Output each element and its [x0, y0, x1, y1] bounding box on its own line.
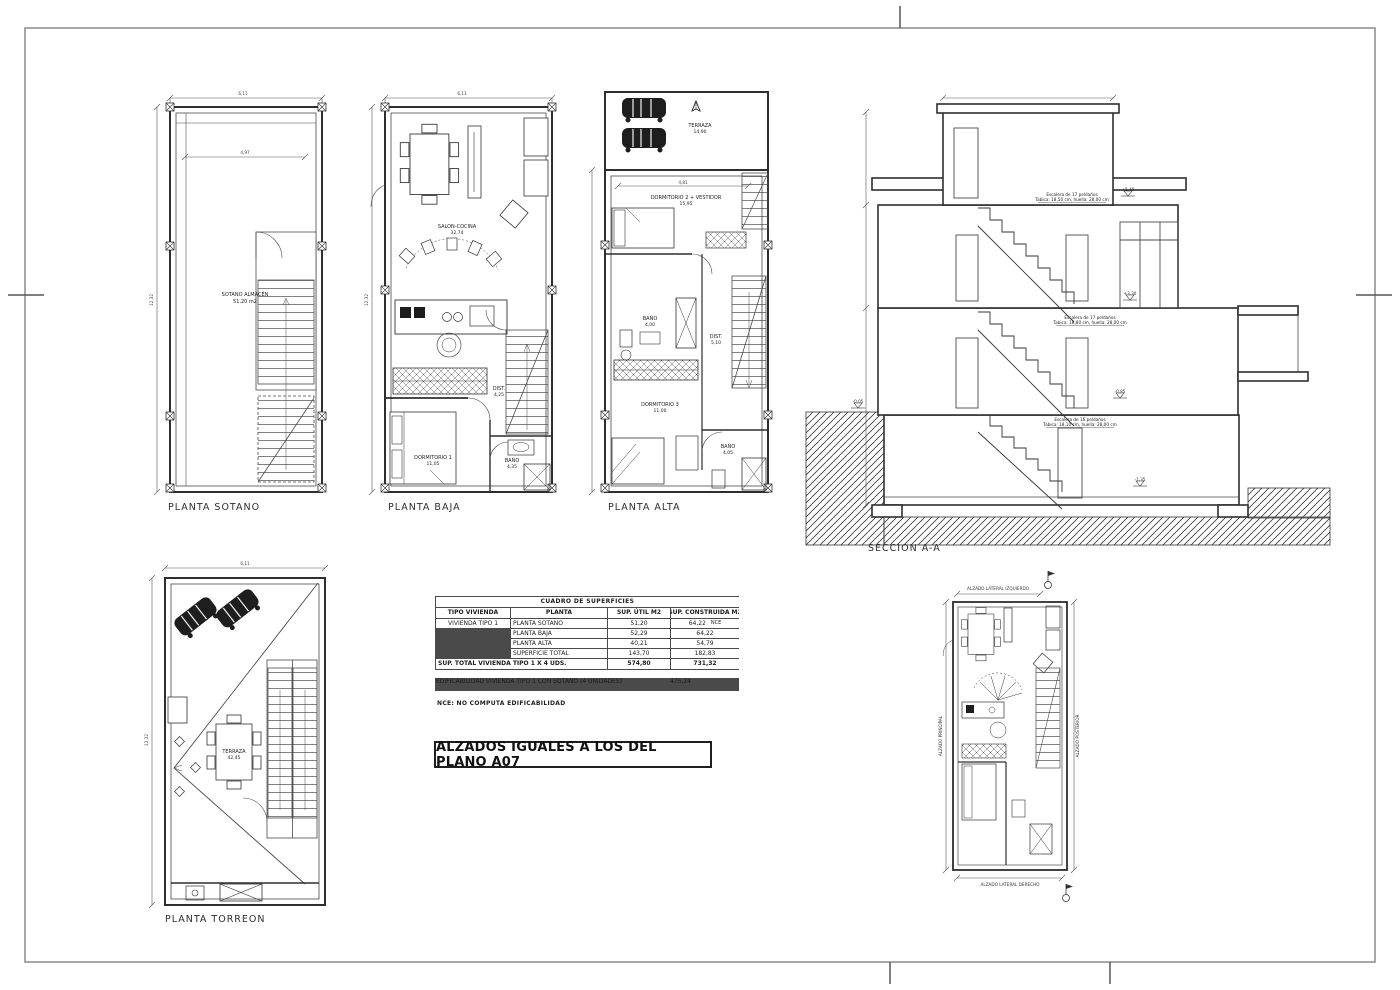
- cell-cons-total-planta: 182,83: [671, 649, 739, 658]
- alta-dorm2-area: 15,95: [680, 201, 693, 207]
- plan-torreon: 6,11 12,32 TERRAZA 42,45: [144, 561, 328, 925]
- cell-edificabilidad-label: EDIFICABILIDAD VIVIENDA TIPO 1 CON SOTAN…: [436, 679, 669, 690]
- alta-terraza-area: 14,90: [694, 129, 707, 135]
- alta-dorm2-label: DORMITORIO 2 + VESTIDOR: [651, 195, 722, 201]
- alta-dorm3-area: 11,00: [654, 408, 667, 414]
- dim-sotano-width: 6,11: [238, 91, 248, 96]
- dim-baja-height: 12,32: [364, 294, 369, 306]
- baja-dorm1-label: DORMITORIO 1: [414, 455, 452, 461]
- section-stair3-line2: Tabica: 18,10 cm, huella: 28,00 cm: [1042, 422, 1116, 427]
- alta-bano1-area: 4,00: [645, 322, 655, 328]
- baja-dist-label: DIST.: [493, 386, 506, 392]
- section-stair1-line2: Tabica: 18,50 cm, huella: 28,00 cm: [1034, 197, 1108, 202]
- cell-superficie-total: SUPERFICIE TOTAL: [511, 649, 607, 658]
- caption-planta-baja: PLANTA BAJA: [388, 502, 461, 513]
- level-low: -0,85: [1115, 389, 1126, 394]
- surfaces-table: CUADRO DE SUPERFICIES TIPO VIVIENDA PLAN…: [435, 596, 739, 691]
- cell-util-sotano: 51,20: [608, 619, 670, 628]
- section-aa: Escalera de 17 peldaños Tabica: 18,50 cm…: [806, 95, 1330, 554]
- cell-cons-baja: 64,22: [671, 629, 739, 638]
- cell-total-util: 574,80: [608, 659, 670, 669]
- alta-bano2-label: BAÑO: [721, 443, 736, 450]
- plan-baja: 6,11 12,32 SALON-COCINA 32,74: [364, 91, 556, 513]
- level-mid: +3,30: [1124, 291, 1137, 296]
- cell-planta-baja: PLANTA BAJA: [511, 629, 607, 638]
- dim-torreon-height: 12,32: [144, 734, 149, 746]
- caption-seccion: SECCION A-A: [868, 543, 941, 554]
- cell-util-alta: 40,21: [608, 639, 670, 648]
- dim-baja-width: 6,11: [457, 91, 467, 96]
- alta-dorm3-label: DORMITORIO 3: [641, 402, 679, 408]
- drawing-sheet: 6,11 4,97 12,32 SOTANO ALMACÉN 51,20 m2 …: [0, 0, 1400, 990]
- dim-torreon-width: 6,11: [240, 561, 250, 566]
- col-sup-util: SUP. ÚTIL M2: [608, 608, 670, 618]
- surfaces-table-title: CUADRO DE SUPERFICIES: [436, 597, 739, 607]
- cell-planta-alta: PLANTA ALTA: [511, 639, 607, 648]
- level-street: -0,05: [853, 399, 864, 404]
- keyplan-label-bottom: ALZADO LATERAL DERECHO: [980, 882, 1040, 887]
- caption-planta-torreon: PLANTA TORREON: [165, 914, 266, 925]
- alta-dist-label: DIST.: [710, 334, 723, 340]
- cons-value: 64,22: [689, 621, 706, 627]
- baja-dorm1-area: 11,05: [427, 461, 440, 467]
- keyplan-label-left: ALZADO PRINCIPAL: [938, 715, 943, 756]
- torreon-terraza-area: 42,45: [228, 755, 241, 761]
- cell-edificabilidad-value: 475,24: [670, 679, 740, 690]
- baja-salon-label: SALON-COCINA: [438, 224, 477, 230]
- dim-sotano-inner: 4,97: [240, 150, 250, 155]
- keyplan-label-top: ALZADO LATERAL IZQUIERDO: [967, 586, 1030, 591]
- keyplan-alzados: ALZADO LATERAL IZQUIERDO ALZADO PRINCIPA…: [938, 571, 1080, 902]
- cell-total-label: SUP. TOTAL VIVIENDA TIPO 1 X 4 UDS.: [436, 659, 607, 669]
- level-basement: -1,35: [1135, 477, 1146, 482]
- cell-util-total-planta: 143,70: [608, 649, 670, 658]
- plan-drawing-canvas: 6,11 4,97 12,32 SOTANO ALMACÉN 51,20 m2 …: [0, 0, 1400, 990]
- alta-bano2-area: 4,05: [723, 450, 733, 456]
- cell-planta-sotano: PLANTA SOTANO: [511, 619, 607, 628]
- alta-dist-area: 5,10: [711, 340, 721, 346]
- dim-alta-inner: 4,81: [678, 180, 688, 185]
- baja-bano-area: 4,35: [507, 464, 517, 470]
- level-top: +5,40: [1122, 187, 1135, 192]
- cell-cons-alta: 54,79: [671, 639, 739, 648]
- plan-sotano: 6,11 4,97 12,32 SOTANO ALMACÉN 51,20 m2 …: [149, 91, 326, 513]
- cell-tipo-vivienda: VIVIENDA TIPO 1: [436, 619, 510, 628]
- section-stair2-line2: Tabica: 18,80 cm, huella: 28,00 cm: [1052, 320, 1126, 325]
- col-tipo-vivienda: TIPO VIVIENDA: [436, 608, 510, 618]
- baja-dist-area: 4,25: [494, 392, 504, 398]
- plan-alta: TERRAZA 14,90 4,81 DORMITORIO 2 + VESTID…: [589, 92, 772, 513]
- baja-salon-area: 32,74: [451, 230, 464, 236]
- cell-util-baja: 52,29: [608, 629, 670, 638]
- nce-note: NCE: NO COMPUTA EDIFICABILIDAD: [437, 700, 565, 707]
- alzados-note-box: ALZADOS IGUALES A LOS DEL PLANO A07: [434, 741, 712, 768]
- sotano-room-label: SOTANO ALMACÉN: [222, 290, 269, 298]
- cell-cons-sotano: 64,22NCE: [671, 619, 739, 628]
- torreon-terraza-label: TERRAZA: [221, 749, 246, 755]
- col-planta: PLANTA: [511, 608, 607, 618]
- keyplan-label-right: ALZADO POSTERIOR: [1075, 715, 1080, 758]
- sotano-room-area: 51,20 m2: [233, 299, 257, 305]
- alta-terraza-label: TERRAZA: [687, 123, 712, 129]
- alta-bano1-label: BAÑO: [643, 315, 658, 322]
- caption-planta-sotano: PLANTA SOTANO: [168, 502, 260, 513]
- col-sup-construida: SUP. CONSTRUIDA M2: [671, 608, 739, 618]
- caption-planta-alta: PLANTA ALTA: [608, 502, 680, 513]
- dim-sotano-height: 12,32: [149, 294, 154, 306]
- cell-total-cons: 731,32: [671, 659, 739, 669]
- nce-tag: NCE: [711, 621, 721, 626]
- baja-bano-label: BAÑO: [505, 457, 520, 464]
